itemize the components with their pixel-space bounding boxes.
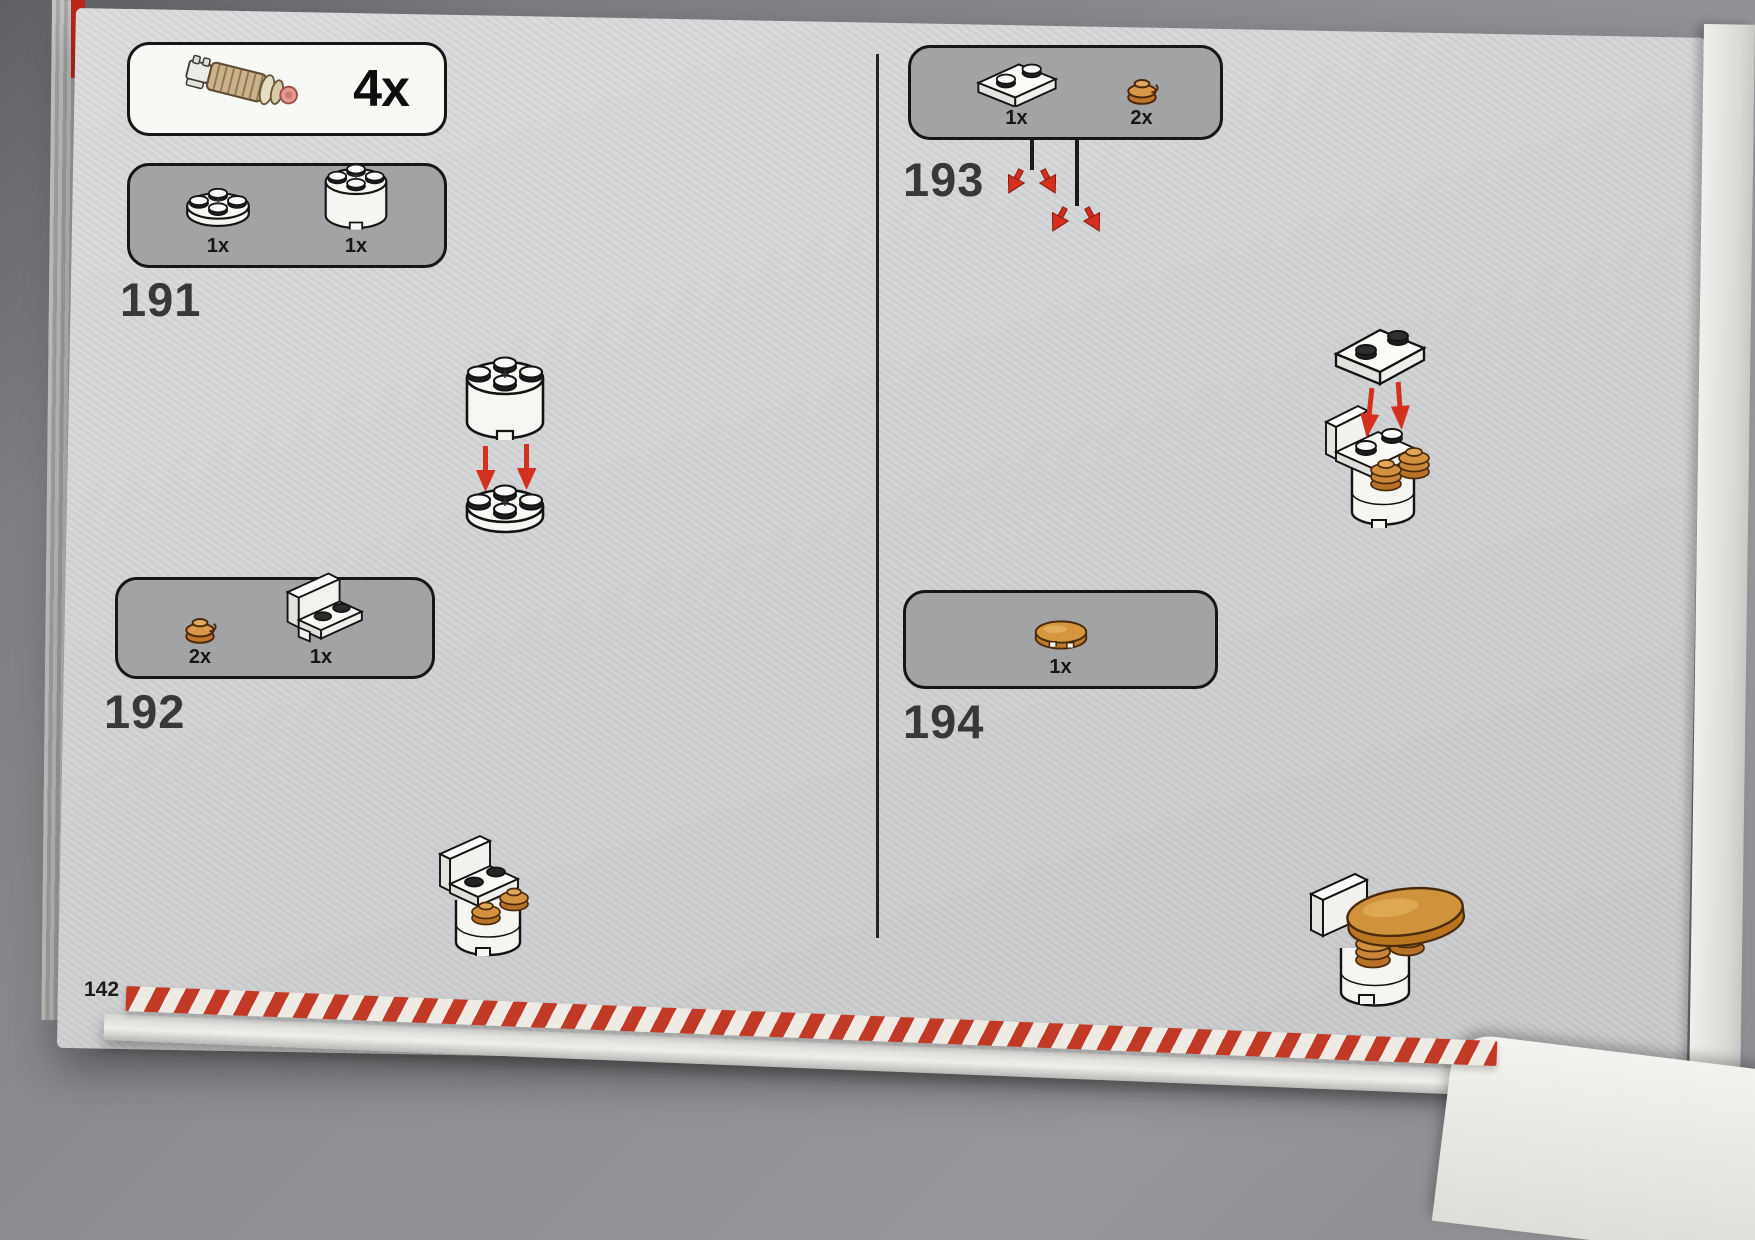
step-191-assembly-diagram	[450, 344, 562, 544]
part-count: 1x	[345, 236, 367, 256]
part-cell: 1x	[314, 153, 398, 256]
plate-1x2-icon	[971, 55, 1063, 107]
manual-photo: 4x 1x	[0, 0, 1755, 1240]
part-count: 1x	[207, 236, 229, 256]
step-194-number: 194	[903, 694, 984, 749]
part-cell: 1x	[1028, 610, 1094, 677]
part-cell: 1x	[176, 177, 260, 256]
part-cell: 1x	[273, 568, 369, 667]
step-193-number: 193	[903, 152, 984, 207]
step-191-parts-box: 1x 1x	[127, 163, 447, 268]
thruster-part-icon	[165, 50, 333, 128]
step-193-parts-box: 1x 2x	[908, 45, 1223, 140]
gold-round-plate-icon	[181, 610, 219, 646]
part-cell: 2x	[1123, 71, 1161, 128]
part-count: 2x	[189, 647, 211, 667]
bracket-panel-icon	[273, 568, 369, 646]
leader-line	[1075, 140, 1079, 206]
part-cell: 2x	[181, 610, 219, 667]
part-count: 1x	[310, 647, 332, 667]
callout-box-4x: 4x	[127, 42, 447, 136]
step-192-assembly-diagram	[430, 826, 542, 976]
column-divider-line	[876, 54, 879, 938]
step-194-parts-box: 1x	[903, 590, 1218, 689]
step-193-assembly-diagram	[1320, 316, 1445, 550]
round-brick-2x2-icon	[314, 153, 398, 235]
red-double-arrow-icon	[1052, 204, 1100, 244]
gold-round-tile-icon	[1028, 610, 1094, 656]
page-number: 142	[84, 978, 119, 1002]
callout-count: 4x	[353, 59, 409, 119]
part-count: 1x	[1049, 657, 1071, 677]
part-count: 1x	[1005, 108, 1027, 128]
part-cell: 1x	[971, 55, 1063, 128]
step-191-number: 191	[120, 272, 201, 327]
red-double-arrow-icon	[1008, 166, 1056, 206]
gold-round-plate-icon	[1123, 71, 1161, 107]
round-plate-2x2-icon	[176, 177, 260, 235]
step-192-parts-box: 2x 1x	[115, 577, 435, 679]
step-192-number: 192	[104, 684, 185, 739]
part-count: 2x	[1130, 108, 1152, 128]
step-194-assembly-diagram	[1303, 856, 1485, 1026]
